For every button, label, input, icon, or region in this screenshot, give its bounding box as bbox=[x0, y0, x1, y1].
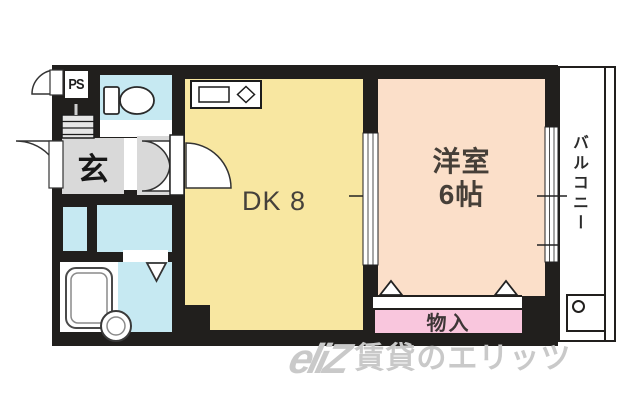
room-entrance: 玄 bbox=[62, 138, 124, 194]
balcony-label: バルコニー bbox=[566, 134, 590, 284]
watermark: eliZ 賃貸のエリッツ bbox=[290, 336, 571, 382]
drain-hole-icon bbox=[572, 300, 585, 313]
wall-notch bbox=[185, 305, 210, 330]
storage-label: 物入 bbox=[427, 307, 471, 336]
watermark-text: 賃貸のエリッツ bbox=[354, 336, 571, 382]
room-bath bbox=[60, 262, 118, 332]
floorplan-image: PS 玄 物入 バルコニー DK 8 洋室 6帖 bbox=[0, 0, 640, 416]
room-washroom bbox=[118, 262, 172, 332]
elitz-logo-mark: eliZ bbox=[284, 336, 352, 382]
entrance-label: 玄 bbox=[78, 144, 109, 189]
washer-space bbox=[63, 207, 87, 251]
vanity-counter bbox=[97, 205, 172, 252]
hallway bbox=[137, 136, 171, 195]
western-room-label: 洋室 6帖 bbox=[378, 145, 545, 211]
pipe-space: PS bbox=[63, 69, 90, 100]
corridor bbox=[100, 120, 172, 137]
pipe-space-label: PS bbox=[69, 76, 84, 93]
dk-label: DK 8 bbox=[185, 186, 363, 217]
washer-pan-icon bbox=[566, 294, 606, 332]
entrance-door-gap bbox=[124, 138, 137, 190]
western-room-size: 6帖 bbox=[378, 178, 545, 211]
washroom-opening bbox=[123, 250, 168, 262]
western-room-name: 洋室 bbox=[378, 145, 545, 178]
room-storage: 物入 bbox=[375, 310, 522, 333]
room-toilet bbox=[100, 75, 172, 120]
